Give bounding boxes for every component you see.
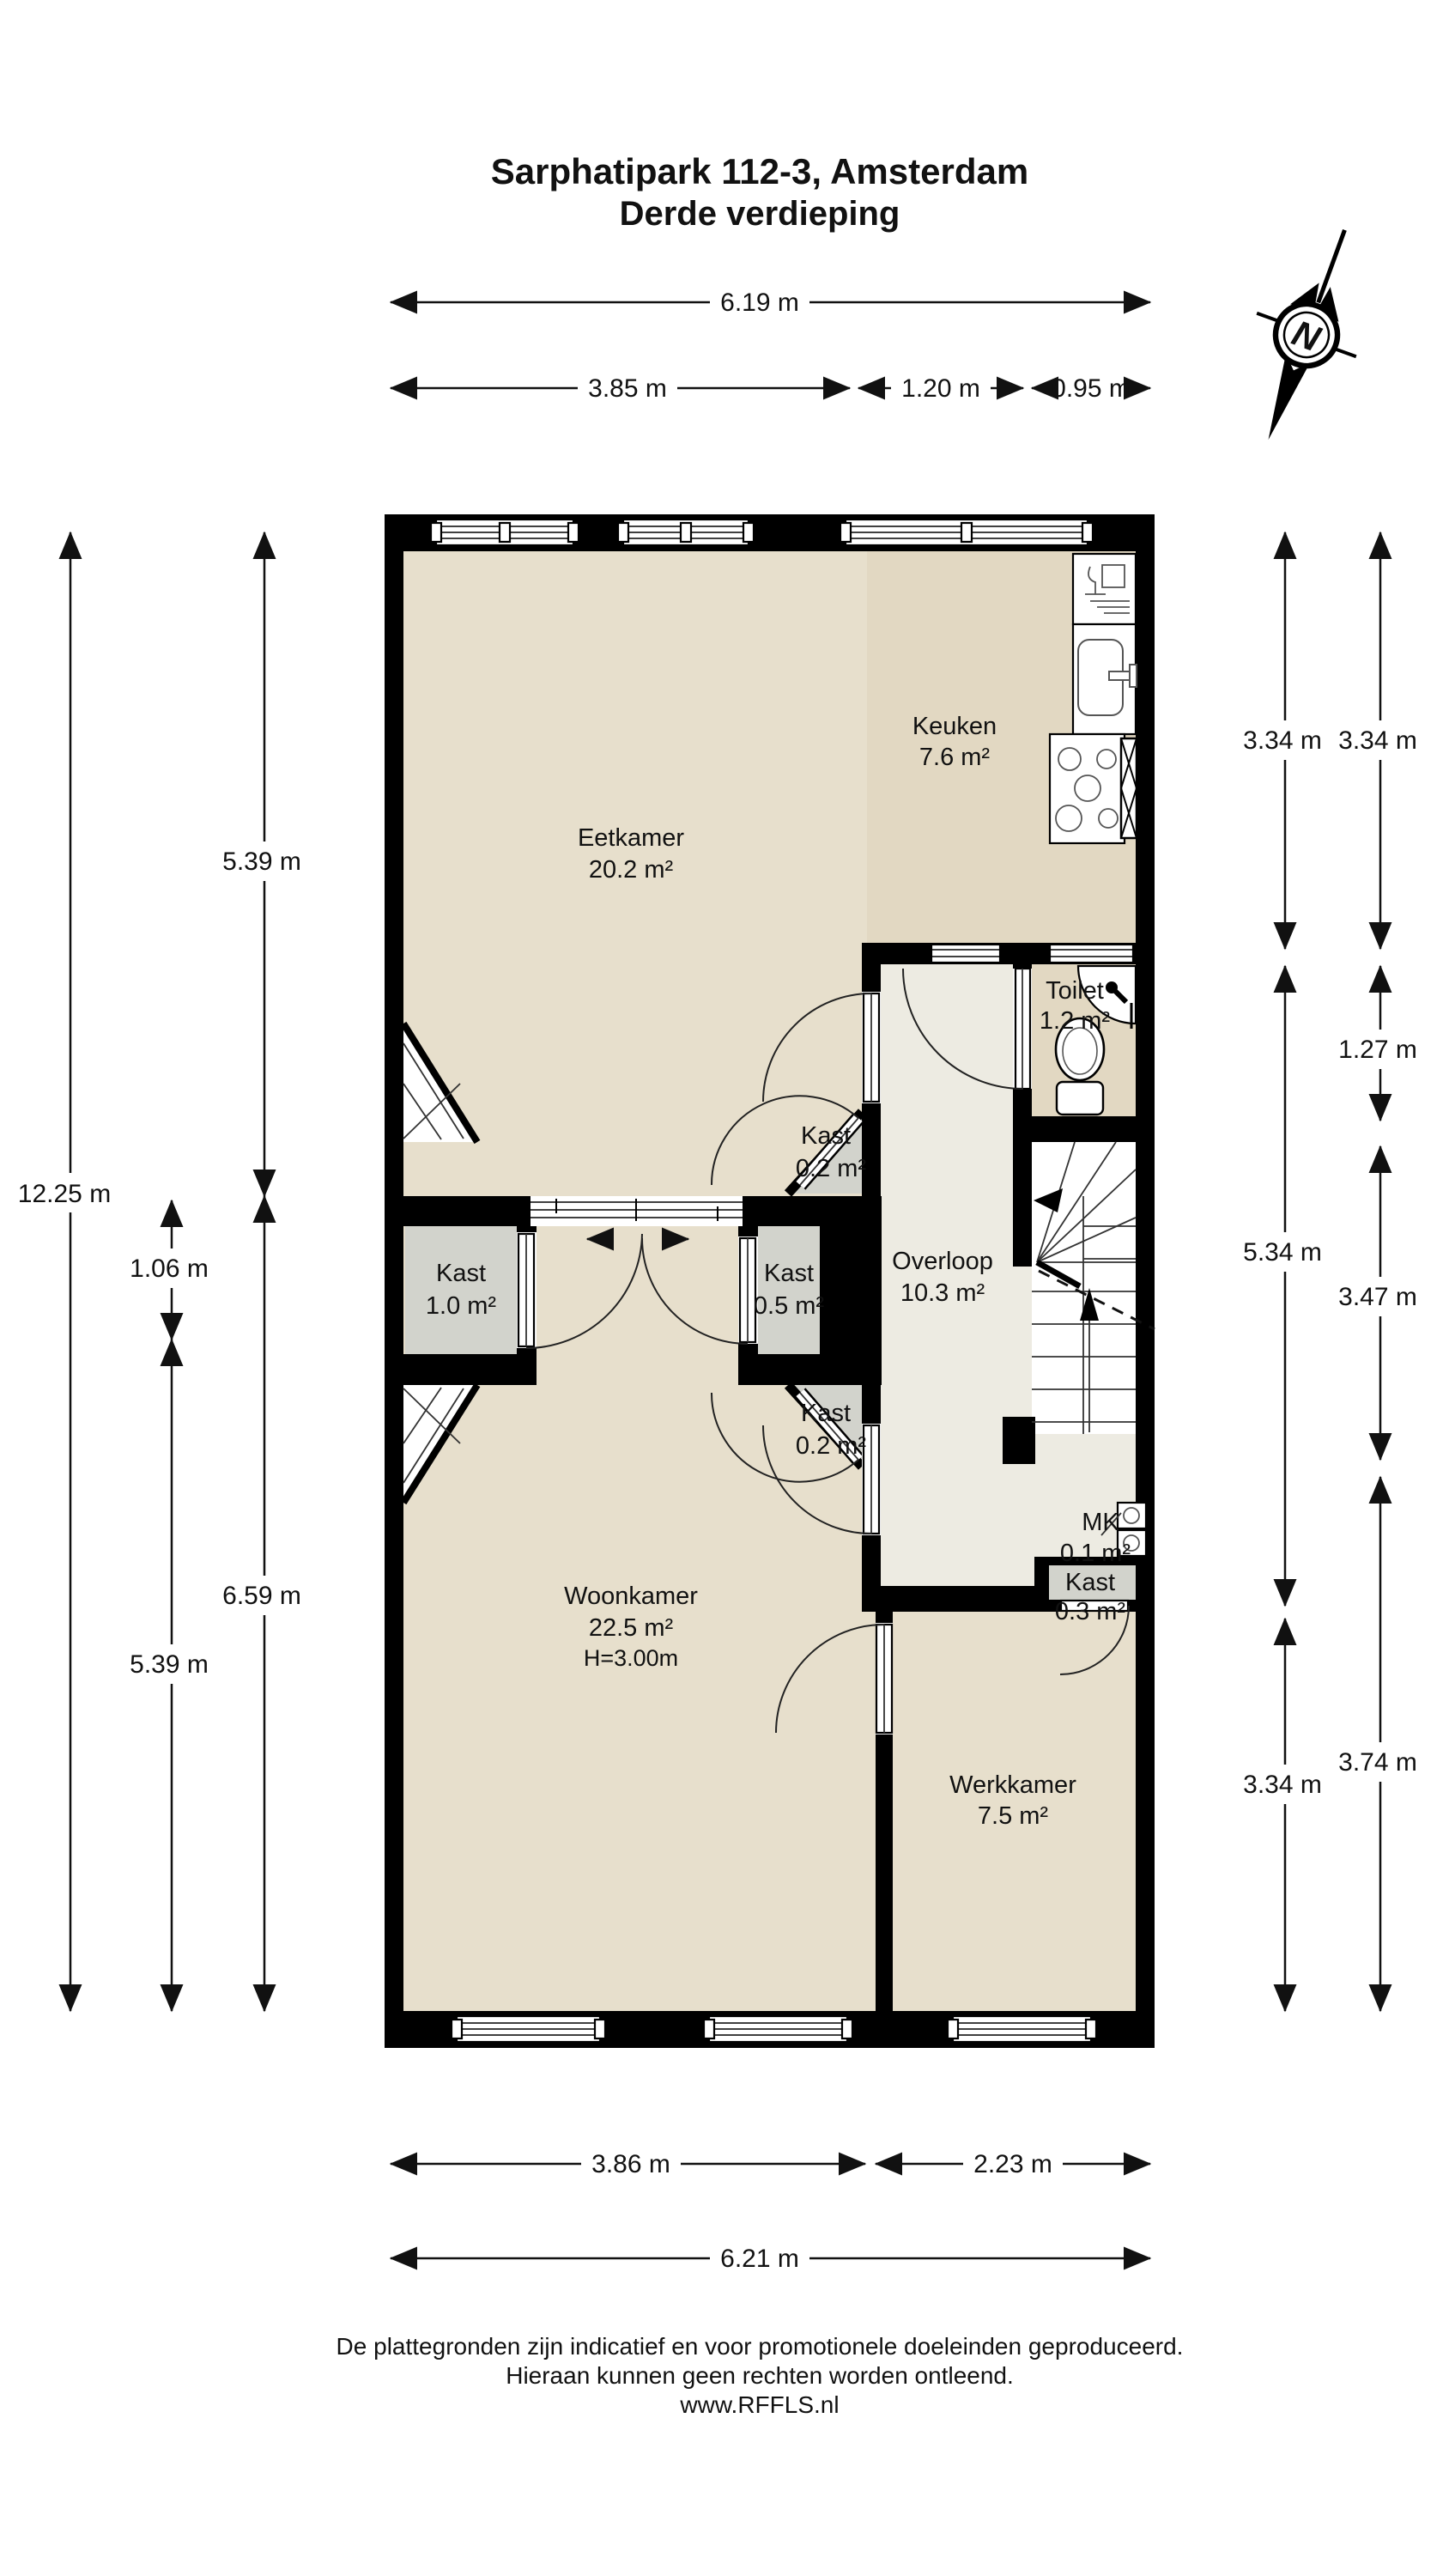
page-subtitle: Derde verdieping <box>620 195 900 233</box>
footer-line-2: Hieraan kunnen geen rechten worden ontle… <box>506 2362 1014 2389</box>
room-area-kast-top: 0.2 m² <box>796 1155 867 1182</box>
room-label-kast-bottom: Kast <box>801 1400 851 1427</box>
room-label-toilet: Toilet <box>1046 977 1104 1005</box>
room-area-kast-mid: 0.5 m² <box>754 1292 825 1320</box>
floorplan-drawing: Sarphatipark 112-3, Amsterdam Derde verd… <box>0 0 1449 2576</box>
dim-top-mid: 1.20 m <box>901 374 980 403</box>
room-area-kast-bottom: 0.2 m² <box>796 1432 867 1460</box>
window <box>840 519 1093 545</box>
room-area-eetkamer: 20.2 m² <box>589 856 674 884</box>
dimension-lines-bottom: 3.86 m 2.23 m 6.21 m <box>391 2150 1150 2273</box>
dim-left-woonkamer: 5.39 m <box>130 1650 209 1679</box>
north-compass-icon: N <box>1217 211 1395 458</box>
room-area-mk: 0.1 m² <box>1060 1540 1131 1567</box>
dim-right-inner-top: 3.34 m <box>1243 726 1322 755</box>
dim-right-outer-top: 3.34 m <box>1338 726 1417 755</box>
room-label-eetkamer: Eetkamer <box>578 824 684 852</box>
room-area-kast-left: 1.0 m² <box>426 1292 497 1320</box>
dim-right-toilet: 1.27 m <box>1338 1036 1417 1064</box>
footer-disclaimer: De plattegronden zijn indicatief en voor… <box>336 2333 1184 2418</box>
room-area-werkkamer: 7.5 m² <box>978 1802 1049 1830</box>
interior-window <box>1050 945 1133 963</box>
window <box>431 519 579 545</box>
dim-left-total: 12.25 m <box>18 1180 111 1208</box>
page-title: Sarphatipark 112-3, Amsterdam <box>491 151 1028 191</box>
dim-right-inner-bottom: 3.34 m <box>1243 1771 1322 1799</box>
dim-left-lowerzone: 6.59 m <box>222 1582 301 1610</box>
dim-right-stairs: 3.47 m <box>1338 1283 1417 1311</box>
room-label-keuken: Keuken <box>912 713 997 740</box>
kast-left-floor <box>405 1226 517 1354</box>
dim-left-eetkamer: 5.39 m <box>222 848 301 876</box>
dimension-lines-left: 12.25 m 5.39 m 1.06 m 6.59 m 5.39 m <box>18 532 301 2011</box>
dimension-lines-right: 3.34 m 3.34 m 1.27 m 5.34 m 3.47 m 3.34 … <box>1243 532 1417 2011</box>
dim-right-overloop: 5.34 m <box>1243 1238 1322 1267</box>
floorplan-page: Sarphatipark 112-3, Amsterdam Derde verd… <box>0 0 1449 2576</box>
dim-bottom-total: 6.21 m <box>720 2245 799 2273</box>
room-label-kast-mid: Kast <box>764 1260 814 1287</box>
room-area-kast-mk: 0.3 m² <box>1055 1598 1126 1625</box>
dim-right-outer-bottom: 3.74 m <box>1338 1748 1417 1777</box>
flue-icon <box>1121 738 1137 838</box>
room-label-woonkamer: Woonkamer <box>564 1583 698 1610</box>
room-area-woonkamer: 22.5 m² <box>589 1614 674 1642</box>
room-label-kast-top: Kast <box>801 1122 851 1150</box>
dim-top-total: 6.19 m <box>720 289 799 317</box>
window <box>948 2016 1096 2042</box>
window <box>452 2016 605 2042</box>
dim-top-right: 0.95 m <box>1052 374 1131 403</box>
kast-mid-floor <box>758 1226 820 1354</box>
dim-left-kastzone: 1.06 m <box>130 1255 209 1283</box>
room-label-kast-left: Kast <box>436 1260 486 1287</box>
room-area-toilet: 1.2 m² <box>1040 1007 1111 1035</box>
room-area-overloop: 10.3 m² <box>900 1279 985 1307</box>
room-height-woonkamer: H=3.00m <box>584 1645 678 1671</box>
window <box>704 2016 852 2042</box>
dim-bottom-right: 2.23 m <box>973 2150 1052 2178</box>
footer-line-1: De plattegronden zijn indicatief en voor… <box>336 2333 1184 2360</box>
interior-window <box>931 945 1000 963</box>
dim-bottom-left: 3.86 m <box>591 2150 670 2178</box>
room-label-kast-mk: Kast <box>1065 1569 1115 1596</box>
dimension-lines-top: 6.19 m 3.85 m 1.20 m 0.95 m <box>391 289 1150 403</box>
room-area-keuken: 7.6 m² <box>919 744 991 771</box>
window <box>618 519 754 545</box>
dim-top-left: 3.85 m <box>588 374 667 403</box>
room-label-werkkamer: Werkkamer <box>949 1771 1076 1799</box>
room-label-overloop: Overloop <box>892 1248 993 1275</box>
room-label-mk: MK <box>1082 1509 1119 1536</box>
footer-website-link: www.RFFLS.nl <box>679 2391 839 2418</box>
